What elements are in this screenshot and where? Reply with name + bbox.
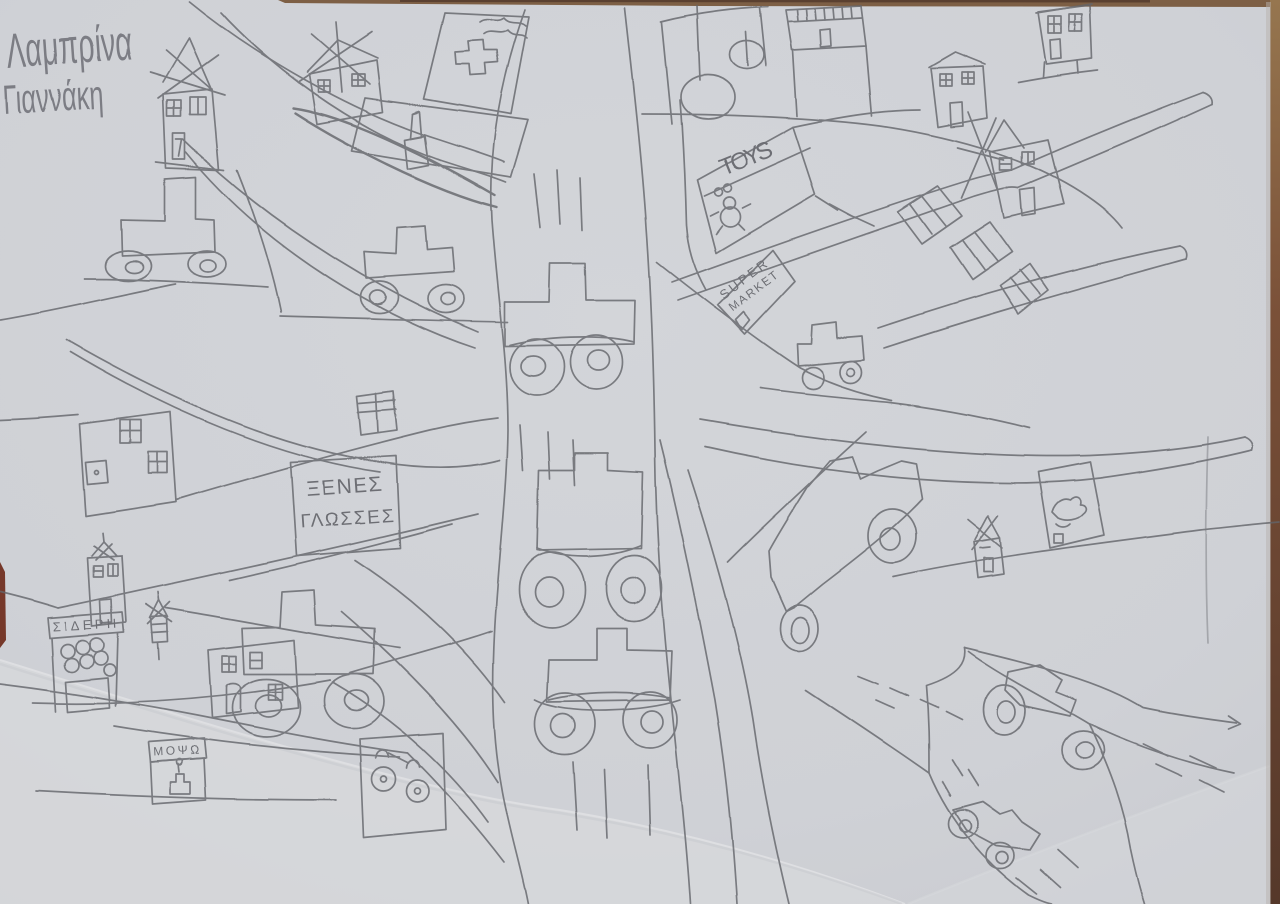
svg-text:Λαμπρίνα: Λαμπρίνα: [5, 17, 133, 79]
svg-text:Γιαννάκη: Γιαννάκη: [2, 73, 104, 124]
